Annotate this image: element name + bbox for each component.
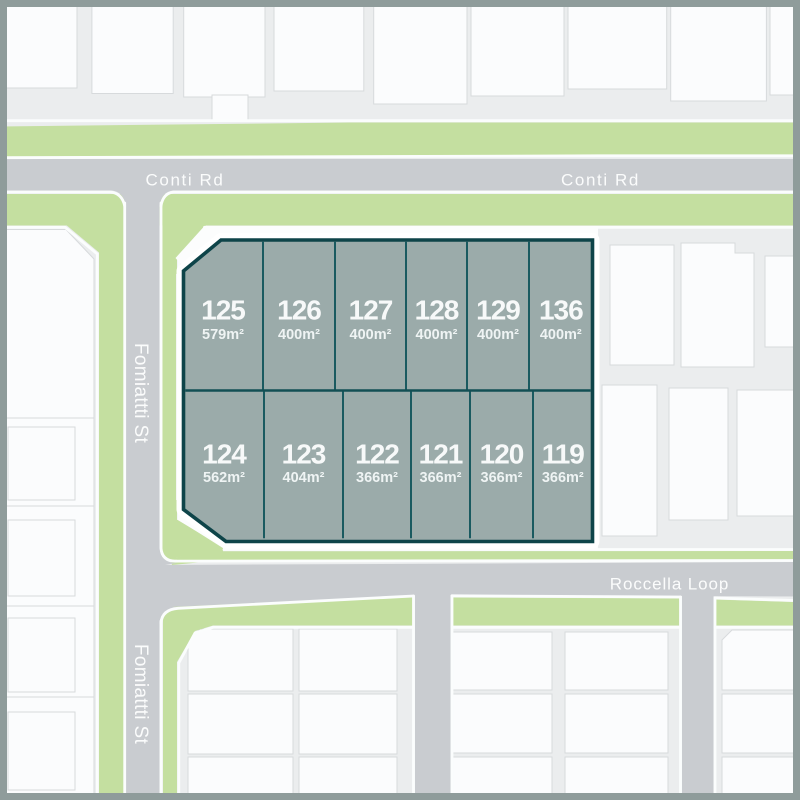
svg-text:126: 126 bbox=[277, 295, 321, 326]
svg-text:122: 122 bbox=[355, 439, 399, 470]
svg-text:121: 121 bbox=[419, 439, 463, 470]
svg-text:123: 123 bbox=[282, 439, 326, 470]
svg-text:129: 129 bbox=[476, 295, 520, 326]
svg-text:366m²: 366m² bbox=[481, 470, 523, 486]
svg-text:127: 127 bbox=[349, 295, 393, 326]
svg-text:400m²: 400m² bbox=[278, 327, 320, 343]
svg-text:Roccella Loop: Roccella Loop bbox=[610, 575, 729, 594]
svg-text:366m²: 366m² bbox=[542, 470, 584, 486]
svg-text:Conti Rd: Conti Rd bbox=[146, 171, 225, 190]
svg-text:562m²: 562m² bbox=[203, 470, 245, 486]
svg-text:125: 125 bbox=[201, 295, 245, 326]
svg-text:366m²: 366m² bbox=[420, 470, 462, 486]
svg-text:400m²: 400m² bbox=[416, 327, 458, 343]
svg-text:366m²: 366m² bbox=[356, 470, 398, 486]
svg-text:136: 136 bbox=[539, 295, 583, 326]
svg-text:128: 128 bbox=[415, 295, 459, 326]
svg-text:400m²: 400m² bbox=[540, 327, 582, 343]
svg-text:400m²: 400m² bbox=[477, 327, 519, 343]
svg-text:579m²: 579m² bbox=[202, 327, 244, 343]
svg-text:400m²: 400m² bbox=[350, 327, 392, 343]
svg-text:Fomiattti St: Fomiattti St bbox=[130, 343, 151, 444]
svg-text:404m²: 404m² bbox=[283, 470, 325, 486]
svg-text:120: 120 bbox=[480, 439, 524, 470]
svg-text:119: 119 bbox=[542, 439, 585, 470]
svg-text:Fomiattti St: Fomiattti St bbox=[130, 644, 151, 745]
svg-text:124: 124 bbox=[202, 439, 247, 470]
svg-text:Conti Rd: Conti Rd bbox=[561, 171, 640, 190]
